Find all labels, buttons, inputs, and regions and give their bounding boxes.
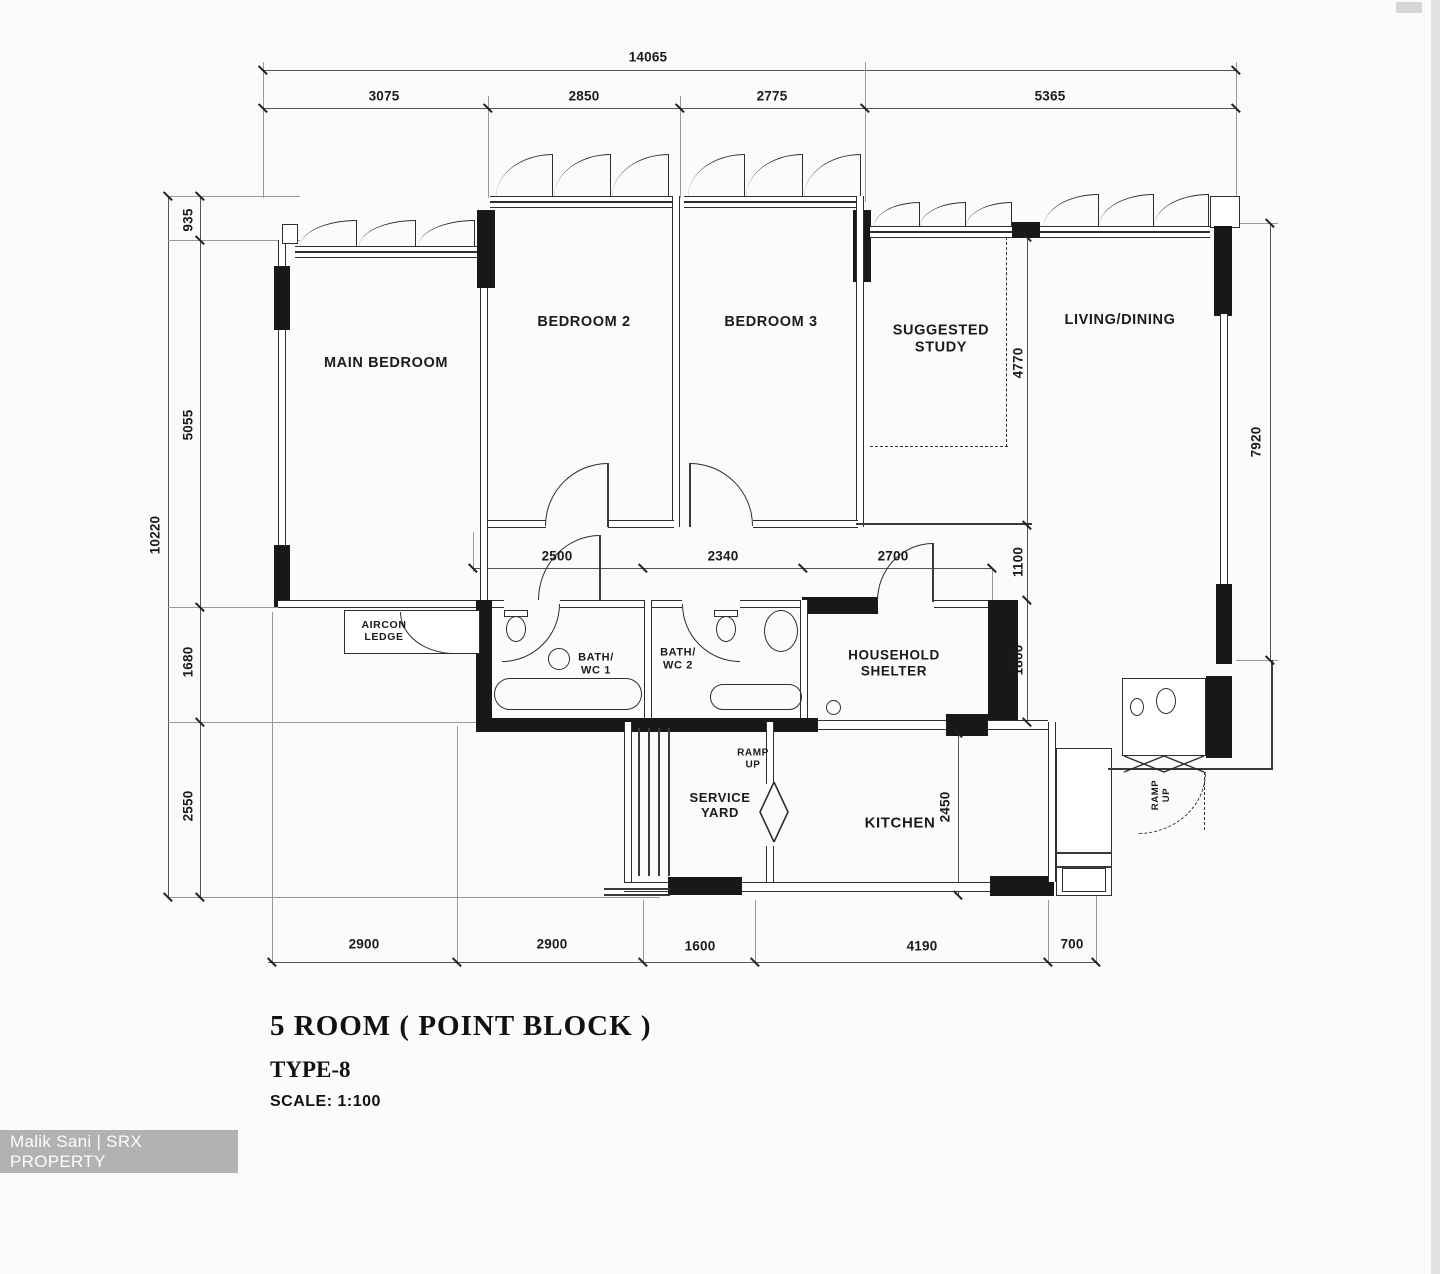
window-icon xyxy=(359,220,416,247)
wall xyxy=(274,266,290,330)
fixture-outline xyxy=(504,610,528,617)
line xyxy=(856,523,1032,525)
extension-line xyxy=(1236,62,1237,198)
door-swing-icon xyxy=(545,463,608,526)
window-icon xyxy=(804,154,861,197)
wall xyxy=(608,520,674,528)
fixture-icon xyxy=(764,610,798,652)
window-band xyxy=(1040,226,1210,238)
extension-line xyxy=(992,570,993,604)
window-icon xyxy=(874,202,920,227)
line xyxy=(604,888,670,890)
line xyxy=(1271,660,1273,770)
wall xyxy=(668,877,742,895)
door-swing-icon xyxy=(690,463,753,526)
dim-corridor-seg1: 2500 xyxy=(542,549,573,564)
dim-kitchen-depth: 2450 xyxy=(938,792,953,823)
label-ramp-up-service: RAMP UP xyxy=(730,748,776,771)
dim-left-seg4: 2550 xyxy=(181,791,196,822)
dimension-line xyxy=(268,962,1098,963)
line xyxy=(604,894,670,896)
door-swing-icon xyxy=(538,535,600,600)
dim-top-seg2: 2850 xyxy=(569,89,600,104)
extension-line xyxy=(1048,900,1049,962)
window-icon xyxy=(418,220,475,247)
dashed-line xyxy=(870,446,1008,448)
dim-bottom-seg1: 2900 xyxy=(349,937,380,952)
window-icon xyxy=(496,154,553,197)
tub-icon xyxy=(710,684,802,710)
dim-corridor-seg2: 2340 xyxy=(708,549,739,564)
label-ramp-up-entrance: RAMP UP xyxy=(1151,776,1173,814)
watermark-bar: Malik Sani | SRX PROPERTY xyxy=(0,1130,238,1173)
room-label-aircon-ledge: AIRCON LEDGE xyxy=(352,619,416,643)
extension-line xyxy=(643,900,644,962)
window-icon xyxy=(1154,194,1209,227)
room-label-bath-wc-1: BATH/ WC 1 xyxy=(571,651,621,676)
dimension-line xyxy=(263,108,1236,109)
dim-left-seg2: 5055 xyxy=(181,410,196,441)
wall xyxy=(1214,226,1232,316)
plan-scale: SCALE: 1:100 xyxy=(270,1093,381,1111)
room-label-kitchen: KITCHEN xyxy=(865,815,936,832)
watermark-text: Malik Sani | SRX PROPERTY xyxy=(0,1132,238,1172)
wall xyxy=(644,600,652,726)
window-band xyxy=(870,226,1012,238)
window-icon xyxy=(554,154,611,197)
dim-left-seg1: 935 xyxy=(181,208,196,231)
dim-bottom-seg2: 2900 xyxy=(537,937,568,952)
extension-line xyxy=(272,612,273,962)
bifold-door-icon xyxy=(757,780,791,846)
fixture-icon xyxy=(548,648,570,670)
dimension-line xyxy=(168,196,169,897)
window-icon xyxy=(688,154,745,197)
dim-living-edge: 7920 xyxy=(1249,427,1264,458)
window-icon xyxy=(1099,194,1154,227)
wall xyxy=(802,597,878,614)
fixture-icon xyxy=(826,700,841,715)
ramp-hatch-icon xyxy=(1122,754,1206,774)
line xyxy=(932,543,934,602)
dim-top-overall: 14065 xyxy=(629,50,668,65)
page-edge-strip xyxy=(1431,0,1440,1274)
window-icon xyxy=(1044,194,1099,227)
wall xyxy=(856,196,864,527)
wall xyxy=(1048,722,1056,882)
extension-line xyxy=(680,96,681,198)
extension-line xyxy=(168,897,660,898)
dimension-line xyxy=(1270,223,1271,660)
window-icon xyxy=(920,202,966,227)
tub-icon xyxy=(494,678,642,710)
room-label-main-bedroom: MAIN BEDROOM xyxy=(324,355,448,371)
dim-top-seg3: 2775 xyxy=(757,89,788,104)
line xyxy=(668,728,670,876)
wall xyxy=(946,714,988,736)
wall xyxy=(753,520,858,528)
line xyxy=(689,463,691,527)
wall xyxy=(274,545,290,607)
wall xyxy=(624,722,632,884)
fixture-icon xyxy=(716,616,736,642)
dim-top-seg1: 3075 xyxy=(369,89,400,104)
dimension-line xyxy=(1027,237,1028,722)
window-band xyxy=(295,246,480,258)
dashed-line xyxy=(1204,772,1206,830)
dim-left-overall: 10220 xyxy=(148,516,163,555)
wall xyxy=(560,600,682,608)
line xyxy=(607,463,609,527)
room-label-household-shelter: HOUSEHOLD SHELTER xyxy=(835,647,953,678)
window-icon xyxy=(300,220,357,247)
dim-bottom-seg5: 700 xyxy=(1060,937,1083,952)
dim-shelter-depth: 1800 xyxy=(1011,645,1026,676)
dim-study-depth: 4770 xyxy=(1011,348,1026,379)
fixture-icon xyxy=(1156,688,1176,714)
dashed-line xyxy=(1006,237,1008,447)
extension-line xyxy=(755,900,756,962)
window-icon xyxy=(966,202,1012,227)
line xyxy=(1056,852,1112,854)
plan-type: TYPE-8 xyxy=(270,1057,351,1083)
fixture-outline xyxy=(1210,196,1240,228)
fixture-icon xyxy=(1130,698,1144,716)
fixture-outline xyxy=(1062,868,1106,892)
window-band xyxy=(684,196,864,208)
dimension-line xyxy=(958,733,959,895)
wall xyxy=(1220,314,1228,586)
room-label-bedroom3: BEDROOM 3 xyxy=(724,314,817,330)
extension-line xyxy=(473,532,474,572)
wall xyxy=(766,846,774,884)
wall xyxy=(990,876,1054,896)
wall xyxy=(934,600,992,608)
room-label-service-yard: SERVICE YARD xyxy=(679,791,761,821)
extension-line xyxy=(488,96,489,198)
dim-corridor-seg3: 2700 xyxy=(878,549,909,564)
dimension-line xyxy=(200,196,201,897)
fixture-outline xyxy=(714,610,738,617)
extension-line xyxy=(457,726,458,962)
floorplan-canvas: 14065 3075 2850 2775 5365 10220 935 5055… xyxy=(0,0,1440,1274)
wall xyxy=(1216,584,1232,664)
wall xyxy=(477,210,495,288)
wall xyxy=(1206,676,1232,758)
wall xyxy=(818,720,1048,730)
dim-bottom-seg3: 1600 xyxy=(685,939,716,954)
fixture-icon xyxy=(506,616,526,642)
window-band xyxy=(490,196,674,208)
fixture-outline xyxy=(282,224,298,244)
window-icon xyxy=(612,154,669,197)
dim-bottom-seg4: 4190 xyxy=(907,939,938,954)
dim-top-seg4: 5365 xyxy=(1035,89,1066,104)
room-label-living-dining: LIVING/DINING xyxy=(1065,312,1176,328)
line xyxy=(648,728,650,876)
wall xyxy=(278,600,488,608)
plan-title: 5 ROOM ( POINT BLOCK ) xyxy=(270,1010,652,1043)
room-label-suggested-study: SUGGESTED STUDY xyxy=(885,322,997,355)
wall xyxy=(488,520,546,528)
line xyxy=(658,728,660,876)
extension-line xyxy=(263,62,264,198)
wall xyxy=(480,288,488,607)
page-corner-mark xyxy=(1396,2,1422,13)
wall xyxy=(672,196,680,527)
wall xyxy=(800,600,808,726)
wall xyxy=(740,600,802,608)
extension-line xyxy=(168,196,300,197)
extension-line xyxy=(168,722,480,723)
extension-line xyxy=(865,62,866,202)
dim-left-seg3: 1680 xyxy=(181,647,196,678)
room-label-bedroom2: BEDROOM 2 xyxy=(537,314,630,330)
room-label-bath-wc-2: BATH/ WC 2 xyxy=(653,646,703,671)
window-icon xyxy=(746,154,803,197)
dimension-line xyxy=(263,70,1236,71)
line xyxy=(638,728,640,876)
line xyxy=(599,535,601,601)
dim-below-study: 1100 xyxy=(1011,547,1026,577)
